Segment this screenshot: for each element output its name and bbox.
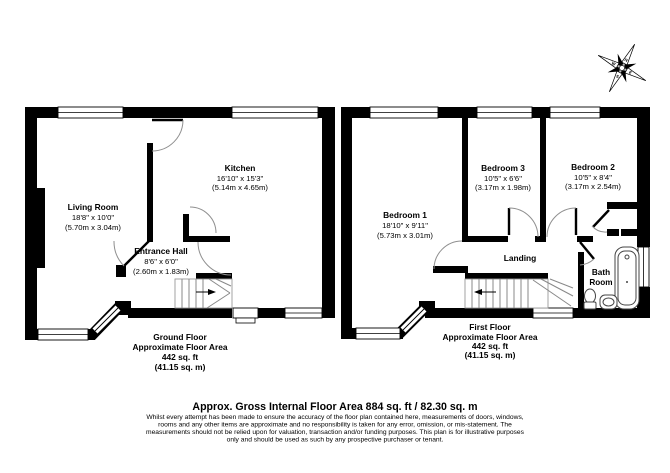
disclaimer-line: measurements should not be relied upon f… (146, 429, 525, 436)
summary-line: 442 sq. ft (162, 352, 199, 362)
bathroom-label-line: Room (589, 278, 612, 287)
bathroom-label-line: Bath (592, 268, 610, 277)
room-size-metric: (5.70m x 3.04m) (65, 223, 121, 232)
living-room-label: Living Room 18'8" x 10'0" (5.70m x 3.04m… (65, 202, 121, 232)
disclaimer-line: Whilst every attempt has been made to en… (146, 414, 523, 421)
room-name: Bedroom 3 (481, 163, 525, 173)
room-size-imperial: 16'10" x 15'3" (217, 174, 264, 183)
first-staircase (465, 279, 573, 308)
first-floor-plan: Bedroom 1 18'10" x 9'11" (5.73m x 3.01m)… (341, 107, 650, 360)
room-name: Bedroom 2 (571, 162, 615, 172)
room-size-metric: (3.17m x 1.98m) (475, 183, 531, 192)
entrance-hall-label: Entrance Hall 8'6" x 6'0" (2.60m x 1.83m… (133, 246, 189, 276)
floorplan-canvas: Living Room 18'8" x 10'0" (5.70m x 3.04m… (0, 0, 670, 473)
front-door-threshold (233, 308, 258, 323)
disclaimer-line: rooms and any other items are approximat… (158, 422, 512, 429)
room-size-imperial: 10'5" x 6'6" (484, 174, 522, 183)
room-size-imperial: 10'5" x 8'4" (574, 173, 612, 182)
footer-title: Approx. Gross Internal Floor Area 884 sq… (192, 401, 477, 413)
room-name: Bedroom 1 (383, 210, 427, 220)
disclaimer-line: only and should be used as such by any p… (227, 437, 444, 444)
landing-label: Landing (504, 253, 537, 263)
floorplan-page: Living Room 18'8" x 10'0" (5.70m x 3.04m… (0, 0, 670, 473)
summary-line: (41.15 sq. m) (155, 362, 206, 372)
footer: Approx. Gross Internal Floor Area 884 sq… (146, 401, 525, 444)
toilet-icon (584, 289, 596, 309)
ground-floor-plan: Living Room 18'8" x 10'0" (5.70m x 3.04m… (25, 107, 335, 372)
room-name: Entrance Hall (134, 246, 188, 256)
compass-rose: N E S W (585, 31, 658, 104)
bathroom-label: Bath Room (589, 268, 612, 287)
room-size-metric: (2.60m x 1.83m) (133, 267, 189, 276)
room-size-imperial: 8'6" x 6'0" (144, 257, 178, 266)
bedroom-1-label: Bedroom 1 18'10" x 9'11" (5.73m x 3.01m) (377, 210, 433, 240)
room-size-imperial: 18'10" x 9'11" (382, 221, 428, 230)
room-size-metric: (5.73m x 3.01m) (377, 231, 433, 240)
bedroom-3-label: Bedroom 3 10'5" x 6'6" (3.17m x 1.98m) (475, 163, 531, 192)
sink-icon (600, 295, 617, 309)
bathtub-icon (615, 247, 639, 309)
room-size-imperial: 18'8" x 10'0" (72, 213, 114, 222)
room-name: Kitchen (225, 163, 256, 173)
summary-line: First Floor (469, 322, 511, 332)
kitchen-label: Kitchen 16'10" x 15'3" (5.14m x 4.65m) (212, 163, 268, 192)
room-size-metric: (5.14m x 4.65m) (212, 183, 268, 192)
summary-line: Ground Floor (153, 332, 207, 342)
room-size-metric: (3.17m x 2.54m) (565, 182, 621, 191)
room-name: Living Room (68, 202, 119, 212)
first-floor-summary: First Floor Approximate Floor Area 442 s… (442, 322, 537, 360)
bedroom-2-label: Bedroom 2 10'5" x 8'4" (3.17m x 2.54m) (565, 162, 621, 191)
summary-line: Approximate Floor Area (132, 342, 227, 352)
ground-floor-summary: Ground Floor Approximate Floor Area 442 … (132, 332, 227, 372)
summary-line: (41.15 sq. m) (465, 350, 516, 360)
ground-staircase (175, 279, 232, 308)
